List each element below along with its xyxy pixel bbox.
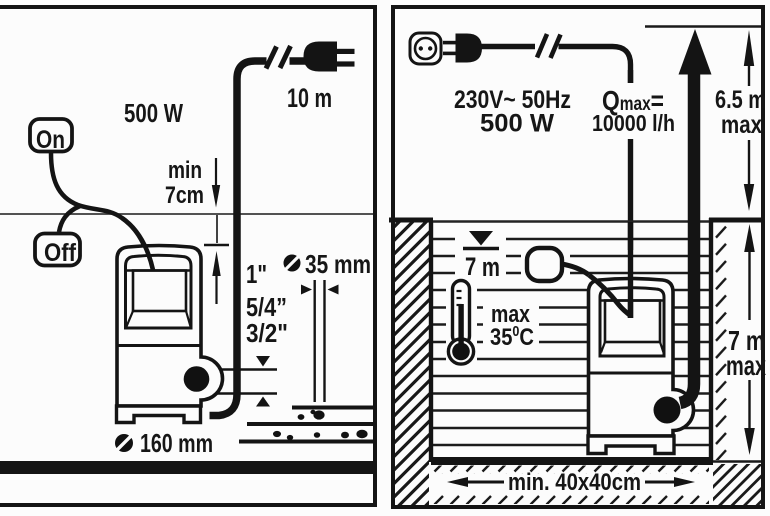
svg-text:500 W: 500 W bbox=[124, 98, 183, 128]
svg-text:160 mm: 160 mm bbox=[140, 428, 213, 458]
svg-text:500 W: 500 W bbox=[480, 110, 554, 138]
svg-text:min: min bbox=[168, 157, 202, 184]
svg-text:On: On bbox=[36, 126, 65, 154]
svg-text:10 m: 10 m bbox=[287, 83, 332, 113]
svg-text:350C: 350C bbox=[490, 322, 534, 350]
svg-text:min. 40x40cm: min. 40x40cm bbox=[508, 469, 641, 496]
svg-text:35 mm: 35 mm bbox=[305, 249, 371, 279]
svg-text:1": 1" bbox=[246, 259, 267, 289]
svg-text:10000 l/h: 10000 l/h bbox=[592, 110, 675, 136]
svg-text:Off: Off bbox=[44, 239, 77, 267]
svg-text:3/2": 3/2" bbox=[246, 318, 288, 348]
svg-text:6.5 m: 6.5 m bbox=[715, 86, 766, 114]
svg-text:max: max bbox=[721, 111, 762, 139]
svg-text:max: max bbox=[726, 350, 766, 381]
svg-text:7cm: 7cm bbox=[165, 182, 204, 209]
